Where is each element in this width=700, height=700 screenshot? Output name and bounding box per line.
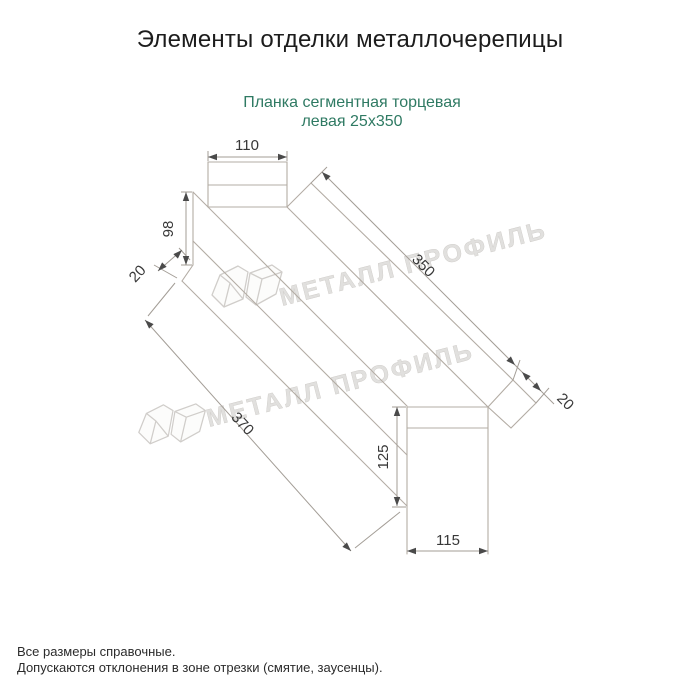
dim-head-lip: 20: [126, 262, 150, 286]
dim-head-height: 98: [160, 221, 177, 238]
dimension-lines: [145, 151, 554, 551]
part-outline: [182, 162, 536, 554]
footnote-line1: Все размеры справочные.: [17, 644, 383, 660]
dim-end-tab: 20: [553, 390, 577, 414]
dim-head-width: 110: [235, 137, 259, 154]
footnotes: Все размеры справочные. Допускаются откл…: [17, 644, 383, 676]
footnote-line2: Допускаются отклонения в зоне отрезки (с…: [17, 660, 383, 676]
dim-end-height: 125: [375, 444, 392, 469]
metall-profil-gem-icon: [212, 265, 282, 307]
metall-profil-gem-icon: [139, 404, 206, 444]
technical-drawing: МЕТАЛЛ ПРОФИЛЬ МЕТАЛЛ ПРОФИЛЬ: [0, 0, 700, 700]
dim-end-width: 115: [436, 532, 460, 549]
